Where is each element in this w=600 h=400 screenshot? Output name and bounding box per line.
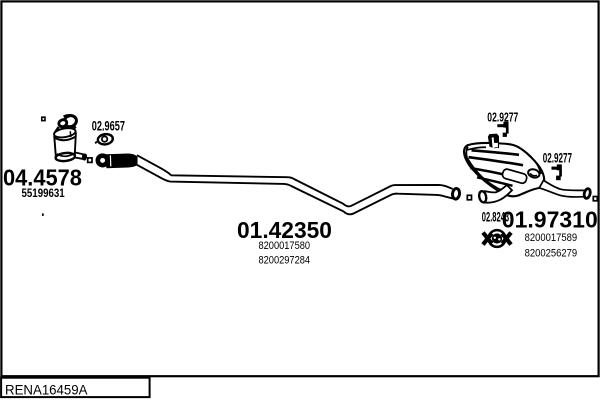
svg-text:02.9657: 02.9657 <box>92 117 125 134</box>
svg-text:01.97310: 01.97310 <box>502 206 598 232</box>
svg-text:8200297284: 8200297284 <box>259 255 311 267</box>
svg-text:8200017580: 8200017580 <box>259 240 311 252</box>
svg-text:02.9277: 02.9277 <box>487 111 518 125</box>
svg-text:02.9277: 02.9277 <box>543 152 572 167</box>
svg-text:55199631: 55199631 <box>22 187 65 200</box>
svg-text:RENA16459A: RENA16459A <box>5 382 88 397</box>
svg-text:8200256279: 8200256279 <box>525 248 578 260</box>
svg-text:8200017589: 8200017589 <box>525 232 578 244</box>
